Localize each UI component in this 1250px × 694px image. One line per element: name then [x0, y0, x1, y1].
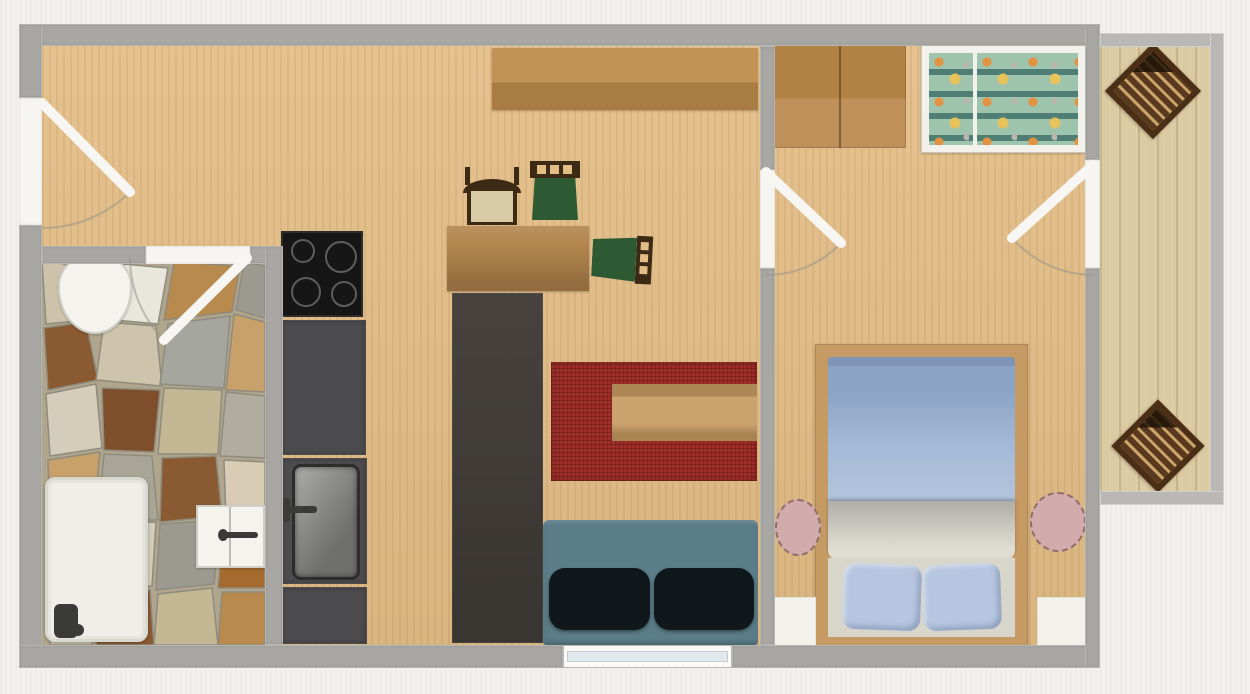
kitchen-counter-lower[interactable]	[281, 587, 367, 644]
sofa-cushion	[549, 568, 650, 630]
double-bed[interactable]	[815, 344, 1028, 650]
wall-bathroom-right	[265, 246, 283, 645]
chair-seat	[591, 235, 637, 281]
coffee-table[interactable]	[612, 384, 757, 441]
sofa-teal[interactable]	[543, 520, 758, 645]
kitchen-counter-upper[interactable]	[281, 320, 366, 455]
burner-icon	[325, 241, 357, 273]
sofa-cushion	[654, 568, 754, 630]
wall-divider-lower	[760, 268, 775, 645]
washbasin-knob-icon	[218, 529, 228, 541]
bathtub-drain-icon	[72, 624, 84, 636]
living-window	[563, 645, 732, 668]
washbasin-cabinet[interactable]	[196, 505, 265, 568]
bed-duvet	[828, 357, 1015, 503]
wall-top	[19, 24, 1100, 46]
balcony-wall-right	[1210, 33, 1224, 505]
balcony-wall-bottom	[1100, 491, 1224, 505]
balcony-doorway	[1085, 160, 1100, 268]
chair-seat	[532, 178, 578, 220]
burner-icon	[291, 239, 315, 263]
wardrobe-door-seam	[839, 45, 841, 148]
wall-right-upper	[1085, 24, 1100, 160]
cooktop[interactable]	[281, 231, 363, 317]
sink-basin	[292, 464, 360, 580]
wall-bottom-left	[19, 645, 563, 668]
crib-mattress-pad	[977, 53, 1078, 145]
wall-bathroom-top-left	[42, 246, 146, 264]
tall-cabinet-column[interactable]	[452, 293, 543, 643]
wall-left-lower	[19, 225, 42, 668]
chair-seat	[467, 191, 517, 225]
wall-divider-upper	[760, 46, 775, 170]
wardrobe-2-door[interactable]	[772, 45, 906, 148]
crib[interactable]	[921, 45, 1086, 153]
round-nightstand-left[interactable]	[775, 499, 821, 556]
bathroom-doorway	[146, 246, 250, 264]
burner-icon	[331, 281, 357, 307]
round-nightstand-right[interactable]	[1030, 492, 1086, 552]
burner-icon	[291, 277, 321, 307]
entrance-doorway	[19, 98, 42, 225]
bed-folded-blanket	[828, 501, 1015, 560]
crib-pillow-pad	[929, 53, 973, 145]
sink-faucet-handle-icon	[283, 498, 290, 522]
kitchen-sink-unit[interactable]	[281, 458, 367, 584]
desk[interactable]	[447, 226, 589, 291]
bathtub[interactable]	[45, 477, 148, 642]
wall-bottom-right	[732, 645, 1100, 668]
wall-right-lower	[1085, 268, 1100, 668]
bedroom-doorway	[760, 170, 775, 268]
bed-pillow-left	[842, 563, 922, 632]
chair-green-seat-1[interactable]	[530, 161, 580, 222]
bed-pillow-right	[922, 563, 1002, 632]
wall-left-upper	[19, 24, 42, 98]
chair-green-seat-2[interactable]	[591, 233, 653, 284]
floor-plan-canvas	[0, 0, 1250, 694]
chair-tan-seat[interactable]	[463, 167, 521, 227]
balcony-wall-top	[1100, 33, 1224, 47]
wall-shelf-sideboard[interactable]	[492, 48, 758, 110]
white-floor-panel-right	[1037, 597, 1087, 648]
